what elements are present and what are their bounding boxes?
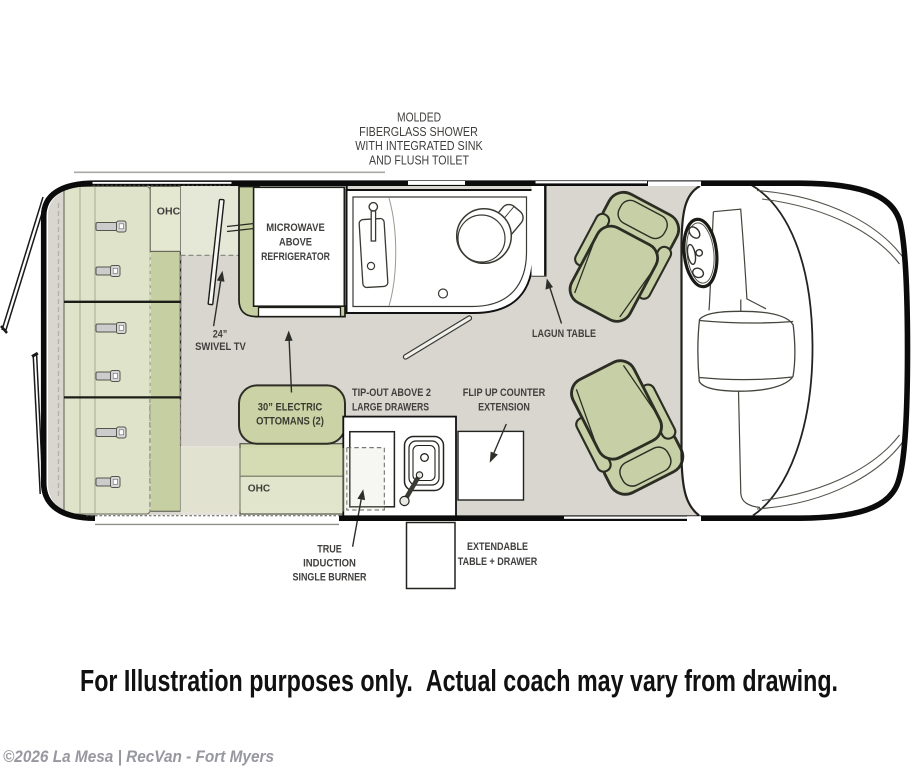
svg-text:SWIVEL TV: SWIVEL TV <box>195 341 246 353</box>
svg-text:MICROWAVE: MICROWAVE <box>266 222 325 234</box>
svg-text:REFRIGERATOR: REFRIGERATOR <box>261 251 330 263</box>
svg-text:TABLE + DRAWER: TABLE + DRAWER <box>458 556 538 568</box>
svg-text:TIP-OUT ABOVE 2: TIP-OUT ABOVE 2 <box>352 387 431 399</box>
svg-text:EXTENDABLE: EXTENDABLE <box>467 541 528 553</box>
svg-text:AND FLUSH TOILET: AND FLUSH TOILET <box>369 153 469 167</box>
svg-text:For Illustration purposes only: For Illustration purposes only. Actual c… <box>80 663 838 698</box>
svg-text:24”: 24” <box>213 328 228 340</box>
svg-text:SINGLE BURNER: SINGLE BURNER <box>293 572 367 584</box>
svg-text:OTTOMANS (2): OTTOMANS (2) <box>256 415 324 427</box>
svg-text:INDUCTION: INDUCTION <box>303 558 356 570</box>
svg-text:©2026 La Mesa | RecVan - Fort: ©2026 La Mesa | RecVan - Fort Myers <box>3 747 274 766</box>
svg-text:OHC: OHC <box>157 206 181 218</box>
svg-text:LAGUN TABLE: LAGUN TABLE <box>532 328 596 340</box>
svg-text:FLIP UP COUNTER: FLIP UP COUNTER <box>463 387 546 399</box>
svg-text:WITH INTEGRATED SINK: WITH INTEGRATED SINK <box>355 139 483 153</box>
svg-text:MOLDED: MOLDED <box>397 110 441 124</box>
svg-text:ABOVE: ABOVE <box>279 237 312 249</box>
svg-text:LARGE DRAWERS: LARGE DRAWERS <box>352 401 429 413</box>
svg-text:30” ELECTRIC: 30” ELECTRIC <box>258 401 322 413</box>
svg-text:EXTENSION: EXTENSION <box>478 401 530 413</box>
svg-text:OHC: OHC <box>248 483 271 495</box>
svg-text:TRUE: TRUE <box>317 544 342 556</box>
svg-text:FIBERGLASS SHOWER: FIBERGLASS SHOWER <box>359 125 478 139</box>
